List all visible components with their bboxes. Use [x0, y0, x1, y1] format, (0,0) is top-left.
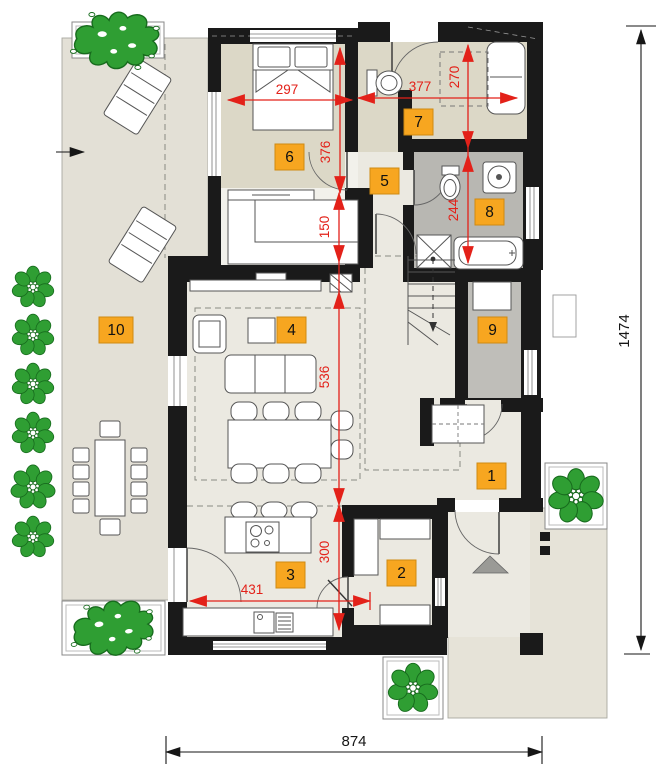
dim-431: 431	[241, 582, 264, 597]
kitchen-counter	[183, 608, 333, 636]
toilet-icon	[367, 70, 402, 96]
window-pantry-right	[435, 578, 445, 606]
svg-text:1: 1	[487, 468, 496, 485]
floor-plan: 297 377 270 376 150 244 536 300 431 874 …	[0, 0, 660, 767]
tree-icon	[11, 363, 55, 406]
svg-text:6: 6	[285, 149, 294, 166]
bathtub-icon	[454, 237, 523, 269]
svg-text:2: 2	[397, 565, 406, 582]
room-label-8: 8	[475, 199, 504, 225]
svg-text:3: 3	[286, 567, 295, 584]
svg-text:10: 10	[107, 322, 125, 339]
dim-536: 536	[317, 366, 332, 389]
window-kitchen-bottom	[213, 641, 326, 650]
bar-stools	[231, 502, 317, 519]
entry-closet	[432, 405, 484, 443]
side-table	[248, 318, 275, 343]
dim-377: 377	[409, 79, 432, 94]
tree-icon	[10, 465, 57, 510]
exterior-step	[553, 295, 576, 337]
svg-text:4: 4	[287, 322, 296, 339]
svg-text:8: 8	[485, 204, 494, 221]
dim-874: 874	[341, 733, 366, 750]
dresser	[228, 190, 314, 200]
svg-text:9: 9	[488, 322, 497, 339]
sofa	[225, 355, 316, 393]
dim-244: 244	[446, 198, 461, 221]
room-label-3: 3	[276, 562, 305, 588]
window-bedroom-top	[250, 30, 336, 42]
washing-machine-icon	[483, 162, 516, 193]
room-label-4: 4	[277, 317, 306, 343]
dim-376: 376	[318, 141, 333, 164]
svg-text:7: 7	[414, 114, 423, 131]
room-label-10: 10	[99, 317, 133, 343]
floor-plan-page: 297 377 270 376 150 244 536 300 431 874 …	[0, 0, 660, 767]
tree-icon	[11, 314, 55, 357]
room-label-9: 9	[478, 317, 507, 343]
room-label-2: 2	[387, 560, 416, 586]
sofa-bed	[487, 42, 525, 114]
dim-297: 297	[276, 82, 299, 97]
boiler-appliance	[473, 282, 511, 310]
dim-150: 150	[317, 216, 332, 239]
shower-icon	[417, 235, 451, 268]
tree-icon	[11, 412, 55, 455]
window-living-left	[168, 356, 187, 406]
room-label-6: 6	[275, 144, 304, 170]
tree-icon	[11, 516, 55, 559]
chimney-vent	[330, 274, 352, 292]
dim-1474: 1474	[616, 314, 633, 347]
room-label-7: 7	[404, 109, 433, 135]
kitchen-island	[225, 517, 311, 553]
armchair	[193, 315, 226, 353]
dim-270: 270	[447, 66, 462, 89]
room-label-5: 5	[370, 168, 399, 194]
room-label-1: 1	[477, 463, 506, 489]
svg-text:5: 5	[380, 173, 389, 190]
dim-300: 300	[317, 541, 332, 564]
window-bedroom-left	[208, 92, 221, 176]
window-utility-right	[524, 350, 537, 395]
bidet-icon	[440, 166, 460, 200]
tree-icon	[11, 266, 55, 309]
window-bath-right	[526, 187, 539, 239]
